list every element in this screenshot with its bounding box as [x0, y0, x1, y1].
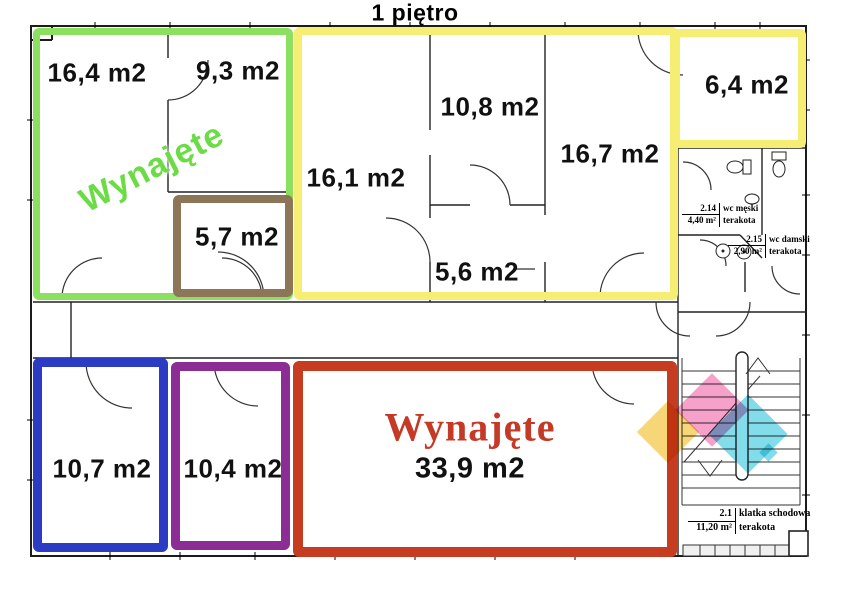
floorplan-1-pietro: 1 piętro 16,4 m2 9,3 m2 5,7 m2 16,1 m2 1… — [0, 0, 841, 595]
room-area-5-7: 5,7 m2 — [195, 222, 279, 253]
toilet-icon — [727, 161, 743, 173]
stair-arrow-up-icon — [746, 358, 770, 374]
wc-female-note: 2.15 wc damski 2,90 m² terakota — [728, 234, 810, 258]
room-area-10-7: 10,7 m2 — [53, 454, 152, 485]
corner-pillar — [789, 531, 808, 556]
room-area-9-3: 9,3 m2 — [196, 56, 280, 87]
wc-female-number: 2.15 — [728, 234, 765, 246]
wc-male-material: terakota — [719, 215, 756, 226]
wc-female-name: wc damski — [765, 234, 810, 246]
toilet-tank-icon — [743, 160, 751, 174]
room-area-6-4: 6,4 m2 — [705, 70, 789, 101]
room-area-10-8: 10,8 m2 — [441, 92, 540, 123]
wc-male-name: wc męski — [719, 203, 758, 215]
room-area-16-7: 16,7 m2 — [561, 139, 660, 170]
room-area-5-6: 5,6 m2 — [435, 257, 519, 288]
wc-female-area: 2,90 m² — [728, 246, 765, 257]
page-title: 1 piętro — [371, 0, 458, 27]
status-rented-lower: Wynajęte — [385, 404, 556, 451]
wc-male-note: 2.14 wc męski 4,40 m² terakota — [682, 203, 758, 227]
room-area-10-4: 10,4 m2 — [184, 454, 283, 485]
room-area-33-9: 33,9 m2 — [415, 453, 525, 486]
staircase-material: terakota — [735, 522, 775, 535]
toilet-tank-icon — [772, 152, 786, 160]
wc-male-number: 2.14 — [682, 203, 719, 215]
room-area-16-4: 16,4 m2 — [48, 58, 147, 89]
staircase-area: 11,20 m² — [688, 522, 735, 535]
staircase-note: 2.1 klatka schodowa 11,20 m² terakota — [688, 508, 810, 534]
landing-window-band — [683, 545, 790, 556]
staircase-number: 2.1 — [688, 508, 735, 522]
staircase-name: klatka schodowa — [735, 508, 810, 522]
wc-female-material: terakota — [765, 246, 802, 257]
room-area-16-1: 16,1 m2 — [307, 163, 406, 194]
wc-male-area: 4,40 m² — [682, 215, 719, 226]
toilet-icon — [773, 161, 785, 177]
